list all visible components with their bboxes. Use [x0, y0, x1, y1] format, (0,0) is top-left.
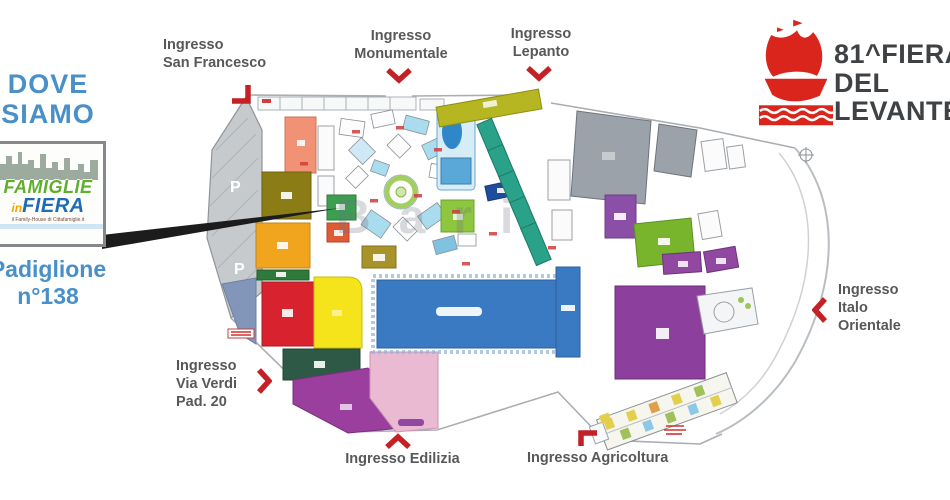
entrance-arrow-lepanto [526, 66, 552, 82]
entrance-arrow-san-francesco [228, 82, 252, 106]
fiera-del-levante-wordmark: 81^FIERA DEL LEVANTE [834, 40, 950, 126]
east-pavilions [605, 195, 758, 379]
parking-letter: P [230, 179, 241, 196]
east-gray-pavilions [571, 111, 745, 204]
flyer-canvas: P P [0, 0, 950, 500]
top-row-buildings [258, 97, 444, 110]
city-skyline-icon [0, 144, 103, 180]
entrance-label-italo-orientale: Ingresso Italo Orientale [838, 281, 938, 335]
entrance-arrow-monumentale [386, 68, 412, 84]
entrance-arrow-via-verdi [256, 368, 272, 394]
pavilion-number-label: Padiglione n°138 [0, 256, 118, 310]
compass-icon [798, 147, 814, 163]
logo-word-fiera: FIERA [22, 195, 85, 217]
brand-line-2: DEL [834, 69, 950, 98]
entrance-label-lepanto: Ingresso Lepanto [496, 25, 586, 61]
entrance-label-edilizia: Ingresso Edilizia [330, 450, 475, 468]
entrance-arrow-edilizia [385, 433, 411, 449]
entrance-arrow-agricoltura [578, 430, 602, 450]
parking-letter: P [234, 261, 245, 278]
agricoltura-complex [589, 373, 737, 450]
entrance-label-agricoltura: Ingresso Agricoltura [527, 449, 717, 467]
logo-word-infiera: inFIERA [0, 196, 103, 216]
brand-line-1: 81^FIERA [834, 40, 950, 69]
entrance-label-via-verdi: Ingresso Via Verdi Pad. 20 [176, 357, 266, 411]
pavilion-blue-strip [556, 267, 580, 357]
entrance-arrow-italo-orientale [812, 297, 828, 323]
logo-word-in: in [11, 201, 22, 215]
famiglie-in-fiera-logo: FAMIGLIE inFIERA il Family-House di Citt… [0, 141, 106, 247]
where-we-are-heading: DOVE SIAMO [0, 70, 114, 129]
entrance-label-monumentale: Ingresso Monumentale [336, 27, 466, 63]
caravel-ship-icon [758, 18, 834, 133]
brand-line-3: LEVANTE [834, 97, 950, 126]
logo-bottom-bar [0, 224, 103, 229]
logo-tagline: il Family-House di Cittafamiglie.it [0, 217, 103, 223]
entrance-label-san-francesco: Ingresso San Francesco [163, 36, 293, 72]
logo-word-famiglie: FAMIGLIE [0, 178, 103, 196]
watermark: Bari [336, 191, 541, 244]
